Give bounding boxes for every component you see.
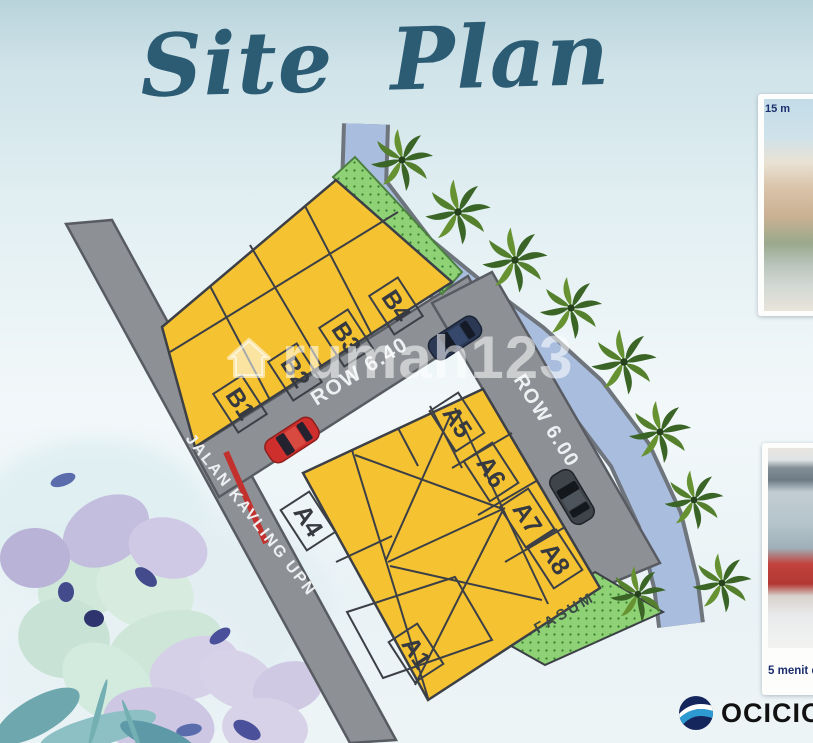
watermark-text: rumah123 (282, 323, 573, 392)
watermark: rumah123 (226, 323, 573, 392)
photo-caption: 5 menit d (768, 665, 813, 677)
photo-card-top: 15 m (758, 94, 813, 316)
house-icon (226, 337, 272, 379)
site-plan-poster: Site Plan (0, 0, 813, 743)
brand-logo-text: OCICIO (721, 698, 813, 729)
location-photo (768, 448, 813, 648)
palm-tree-icon (425, 179, 490, 244)
ocicio-logo-icon (678, 695, 714, 731)
location-photo (764, 99, 813, 311)
brand-logo: OCICIO (678, 695, 813, 731)
photo-caption: 15 m (765, 103, 790, 115)
photo-card-bottom: 5 menit d (762, 443, 813, 695)
